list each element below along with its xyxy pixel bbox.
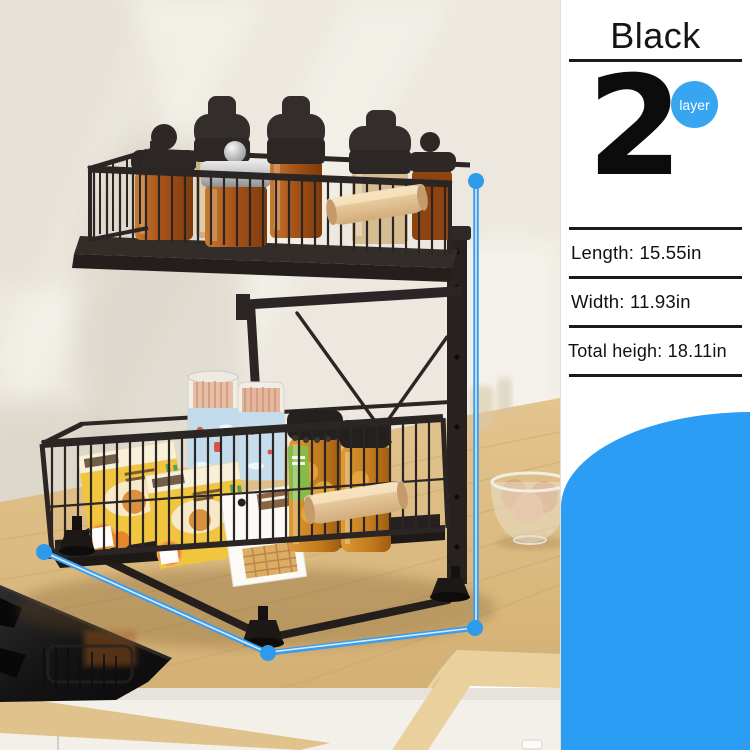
dimension-dot	[468, 173, 484, 189]
spec-panel: Black 2 layer Length: 15.55in Width: 11.…	[560, 0, 750, 750]
spec-length: Length: 15.55in	[561, 230, 750, 276]
dimension-dot	[467, 620, 483, 636]
layer-badge: layer	[671, 81, 718, 128]
spec-total-height: Total heigh: 18.11in	[561, 328, 750, 374]
blue-corner-shape	[561, 412, 750, 750]
dimension-dot	[260, 645, 276, 661]
divider	[569, 374, 742, 377]
layer-count-block: 2 layer	[561, 62, 750, 227]
cabinet-handle	[522, 740, 542, 749]
layer-count-number: 2	[587, 58, 683, 196]
spec-width: Width: 11.93in	[561, 279, 750, 325]
product-photo	[0, 0, 560, 750]
product-card: Black 2 layer Length: 15.55in Width: 11.…	[0, 0, 750, 750]
dimension-dot	[36, 544, 52, 560]
